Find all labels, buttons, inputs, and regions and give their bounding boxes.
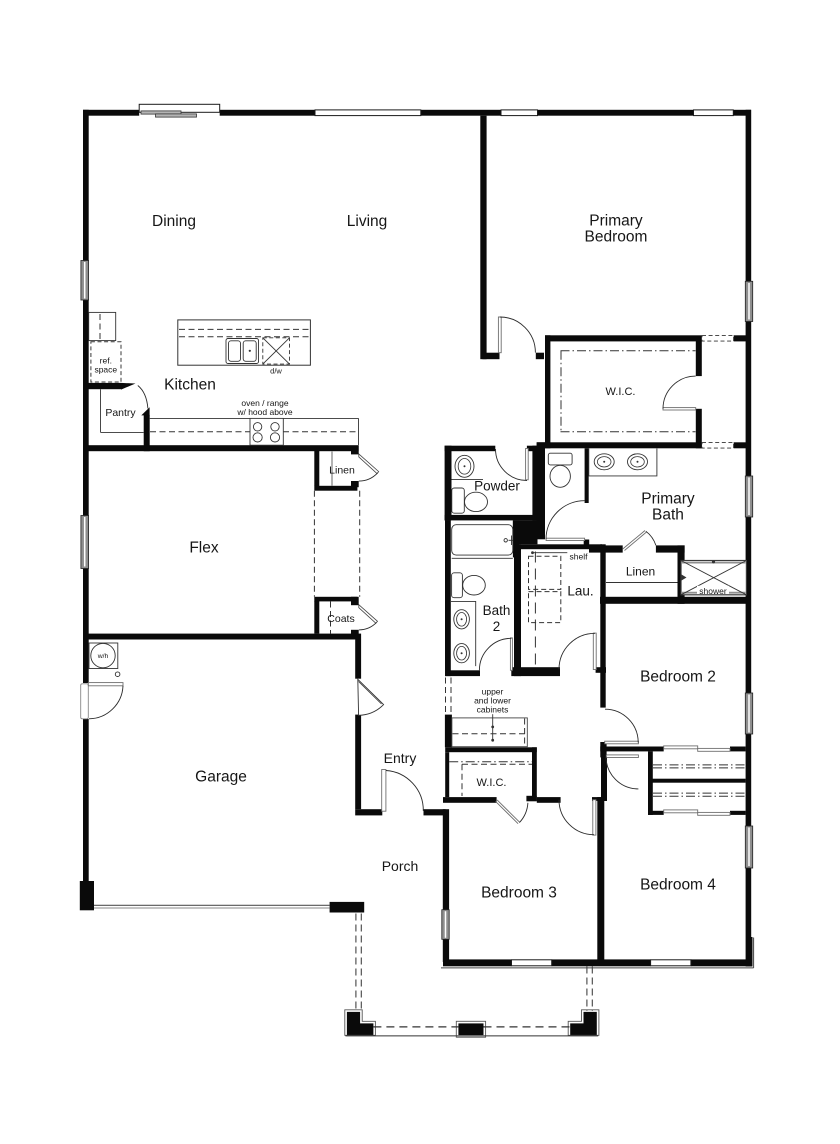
svg-text:Kitchen: Kitchen xyxy=(164,377,216,394)
svg-text:Bedroom 3: Bedroom 3 xyxy=(481,885,557,902)
svg-text:Dining: Dining xyxy=(152,213,196,230)
svg-text:W.I.C.: W.I.C. xyxy=(477,777,507,789)
svg-text:w/h: w/h xyxy=(97,653,109,660)
svg-text:W.I.C.: W.I.C. xyxy=(606,386,636,398)
svg-text:Linen: Linen xyxy=(626,565,655,579)
svg-text:shelf: shelf xyxy=(570,552,589,562)
svg-text:d/w: d/w xyxy=(270,367,282,376)
svg-text:cabinets: cabinets xyxy=(477,705,509,715)
svg-text:shower: shower xyxy=(699,586,727,596)
svg-text:Entry: Entry xyxy=(384,750,417,766)
svg-text:Bath: Bath xyxy=(483,603,511,618)
svg-text:Bedroom: Bedroom xyxy=(585,229,648,246)
svg-text:Coats: Coats xyxy=(327,613,354,625)
svg-text:Powder: Powder xyxy=(474,479,520,494)
svg-text:Lau.: Lau. xyxy=(567,584,593,599)
svg-text:space: space xyxy=(94,365,117,375)
svg-text:Garage: Garage xyxy=(195,769,247,786)
svg-text:Linen: Linen xyxy=(329,465,355,477)
svg-text:w/ hood above: w/ hood above xyxy=(236,407,293,417)
svg-text:Porch: Porch xyxy=(382,858,419,874)
svg-text:2: 2 xyxy=(493,619,501,634)
svg-text:Living: Living xyxy=(347,213,388,230)
svg-text:Bath: Bath xyxy=(652,507,684,524)
svg-text:Bedroom 4: Bedroom 4 xyxy=(640,877,716,894)
svg-text:Pantry: Pantry xyxy=(105,407,136,419)
svg-text:Primary: Primary xyxy=(641,491,695,508)
svg-text:Bedroom 2: Bedroom 2 xyxy=(640,669,716,686)
svg-text:Primary: Primary xyxy=(589,213,643,230)
svg-text:Flex: Flex xyxy=(189,540,219,557)
